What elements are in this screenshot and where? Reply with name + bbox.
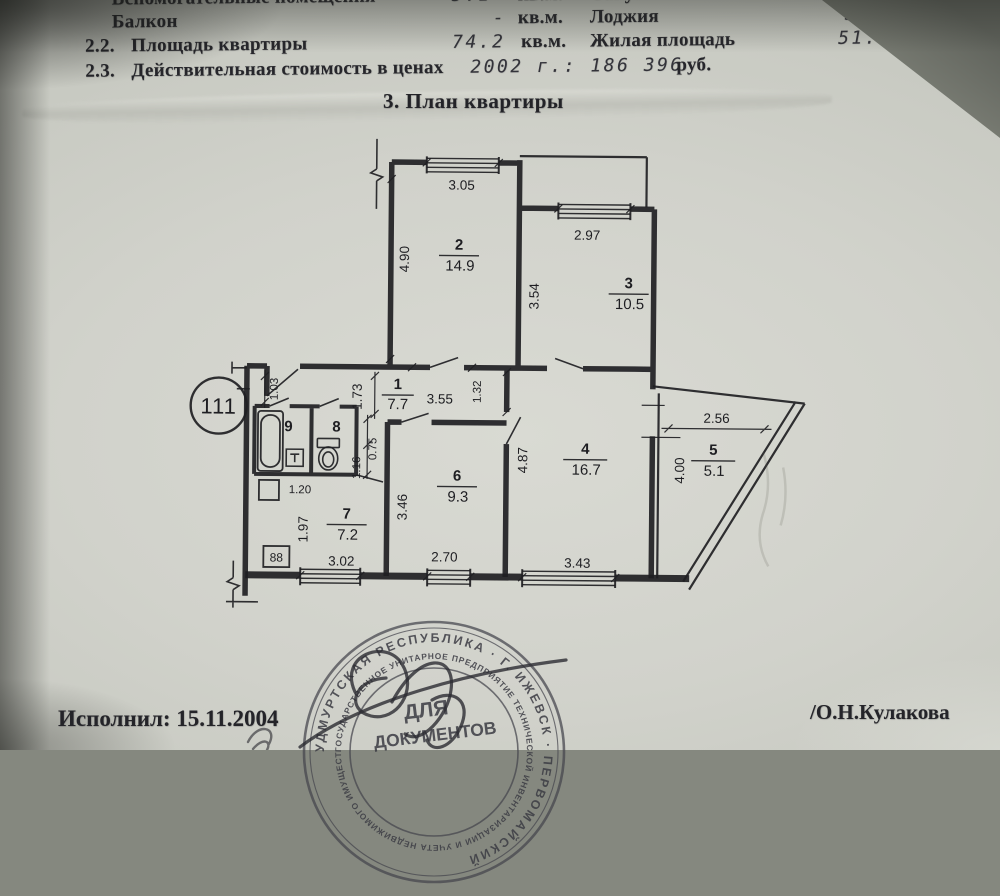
bathroom-label: Санузел: [589, 0, 662, 5]
dim-room4-depth: 4.87: [515, 447, 530, 473]
room8-number: 8: [332, 419, 340, 436]
dim-closet-width: 1.20: [289, 484, 311, 496]
balcony-unit: кв.м.: [518, 7, 563, 29]
item-2-2-number: 2.2.: [85, 35, 115, 57]
floor-plan-drawing: 111 88 1 7.7 2 14.9 3 10.5 4 16.7 5 5.1 …: [170, 117, 834, 623]
aux-rooms-label: Вспомогательные помещения: [111, 0, 375, 10]
stamp-center-line2: ДОКУМЕНТОВ: [373, 717, 498, 752]
apartment-area-value: 74.2: [452, 31, 506, 53]
cost-label: Действительная стоимость в ценах: [131, 57, 443, 82]
dim-hall-niche: 1.03: [269, 378, 281, 400]
room4-number: 4: [581, 441, 590, 458]
dim-wc-depth: 1.16: [351, 456, 363, 478]
dim-room2-depth: 4.90: [397, 246, 412, 272]
room3-number: 3: [625, 275, 633, 292]
round-stamp: УДМУРТСКАЯ РЕСПУБЛИКА · Г. ИЖЕВСК · ПЕРВ…: [278, 616, 590, 896]
room1-area: 7.7: [387, 396, 408, 413]
dim-room7-width: 3.02: [328, 553, 354, 568]
balcony-label: Балкон: [112, 11, 178, 34]
loggia-walls: [516, 156, 807, 590]
dim-room7-depth: 1.97: [295, 516, 310, 542]
window-end-caps: [300, 155, 631, 588]
photographed-document: { "summary": { "aux_label": "Вспомогател…: [0, 0, 1000, 750]
room5-area: 5.1: [704, 463, 725, 480]
loggia-label: Лоджия: [590, 6, 659, 29]
room7-area: 7.2: [337, 527, 358, 544]
dim-room6-width: 2.70: [431, 549, 457, 564]
room2-area: 14.9: [445, 258, 474, 275]
aux-rooms-value: 5.1: [451, 0, 491, 6]
dim-loggia-depth: 4.00: [672, 457, 687, 483]
dim-hall-width: 3.55: [427, 391, 453, 406]
signatory-name: /О.Н.Кулакова: [810, 700, 950, 725]
room1-number: 1: [394, 376, 402, 393]
closet-symbol: [259, 480, 279, 500]
room6-area: 9.3: [447, 489, 468, 506]
aux-rooms-unit: кв.м.: [517, 0, 562, 6]
living-area-label: Жилая площадь: [590, 29, 735, 53]
dim-room3-depth: 3.54: [527, 283, 542, 310]
balcony-value: -: [493, 7, 507, 28]
room3-area: 10.5: [615, 296, 644, 313]
section-title: 3. План квартиры: [383, 89, 564, 114]
dim-wc-width: 0.75: [367, 438, 379, 460]
room4-area: 16.7: [571, 462, 600, 479]
electric-panel-label: 88: [270, 550, 284, 564]
item-2-3-number: 2.3.: [85, 60, 115, 82]
dim-room3-width: 2.97: [574, 228, 600, 243]
dim-room6-depth: 3.46: [395, 494, 410, 520]
apartment-area-unit: кв.м.: [521, 31, 566, 53]
apartment-number: 111: [200, 393, 237, 418]
room5-number: 5: [709, 442, 717, 459]
bathtub-symbol: [258, 411, 284, 471]
stamp-outer-ring-inner-line: [310, 628, 558, 876]
dim-loggia-width: 2.56: [703, 411, 729, 426]
room2-number: 2: [455, 237, 463, 254]
toilet-symbol: [317, 438, 339, 470]
executed-by-line: Исполнил: 15.11.2004: [58, 706, 279, 732]
sink-symbol: [286, 449, 303, 466]
stamp-center-line1: ДЛЯ: [402, 696, 449, 724]
dim-room2-width: 3.05: [448, 178, 474, 193]
dim-room4-width: 3.43: [564, 556, 590, 571]
stamp-outer-ring: [304, 622, 564, 882]
dim-hall-right: 1.32: [472, 381, 484, 403]
room7-number: 7: [342, 506, 350, 523]
cost-unit: руб.: [676, 54, 711, 76]
room6-number: 6: [453, 468, 461, 485]
bathroom-walls: [254, 406, 357, 475]
apartment-area-label: Площадь квартиры: [131, 33, 308, 57]
room9-number: 9: [284, 418, 292, 435]
dim-hall-depth: 1.73: [350, 384, 365, 410]
cost-value: 2002 г.: 186 396: [470, 54, 684, 77]
door-leaves: [266, 356, 583, 484]
